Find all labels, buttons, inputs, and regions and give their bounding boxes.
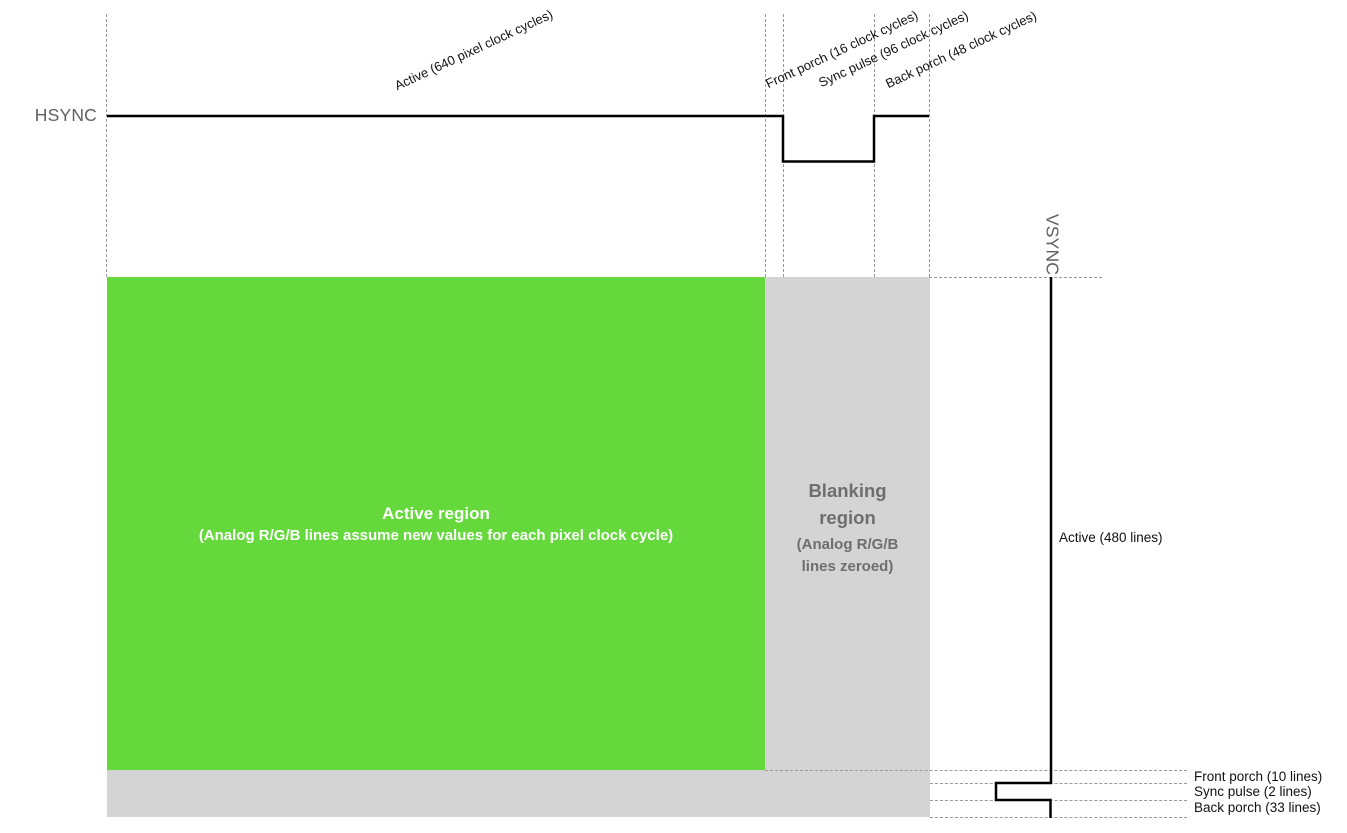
vsync-waveform: [996, 277, 1051, 818]
vsync-back-porch-label: Back porch (33 lines): [1194, 800, 1321, 816]
waveform-layer: [0, 0, 1347, 833]
hsync-waveform: [107, 116, 929, 162]
vsync-signal-label: VSYNC: [1042, 210, 1063, 280]
vsync-sync-pulse-label: Sync pulse (2 lines): [1194, 784, 1312, 800]
hsync-signal-label: HSYNC: [27, 105, 97, 126]
vga-timing-diagram: Active region (Analog R/G/B lines assume…: [0, 0, 1347, 833]
vsync-front-porch-label: Front porch (10 lines): [1194, 769, 1322, 785]
vsync-active-label: Active (480 lines): [1059, 530, 1163, 546]
